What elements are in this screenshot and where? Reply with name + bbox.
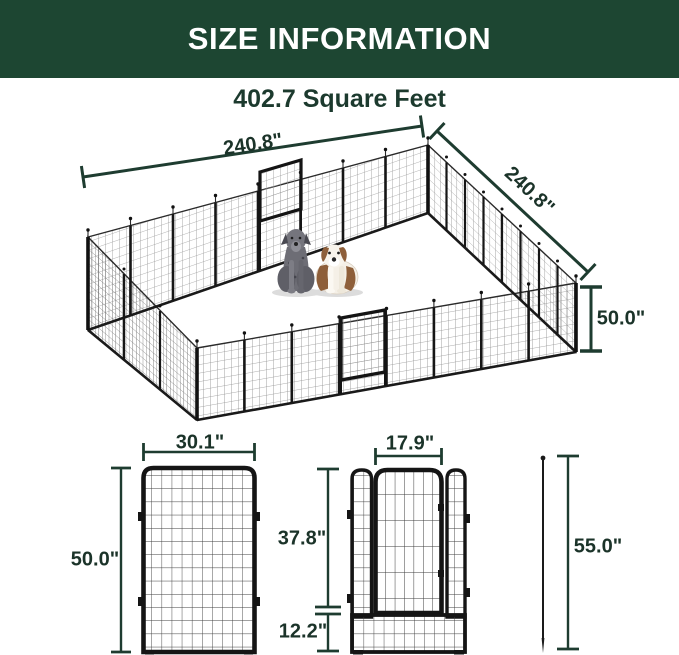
dim-door-width: 17.9" [386, 433, 434, 456]
playpen-illustration [81, 116, 602, 421]
size-information-infographic: SIZE INFORMATION 402.7 Square Feet 240.8… [0, 0, 679, 655]
door-panel-diagram [315, 448, 470, 655]
dim-door-lower-height: 12.2" [279, 621, 327, 644]
saint-bernard-icon [316, 245, 358, 295]
header-banner: SIZE INFORMATION [0, 0, 679, 78]
dim-panel-height: 50.0" [71, 549, 119, 572]
dim-pen-height: 50.0" [597, 308, 645, 331]
dim-stake-length: 55.0" [574, 536, 622, 559]
page-title: SIZE INFORMATION [188, 21, 492, 57]
dim-door-upper-height: 37.8" [278, 528, 326, 551]
area-title: 402.7 Square Feet [0, 85, 679, 114]
panel-diagram [111, 443, 260, 655]
dim-panel-width: 30.1" [176, 432, 224, 455]
